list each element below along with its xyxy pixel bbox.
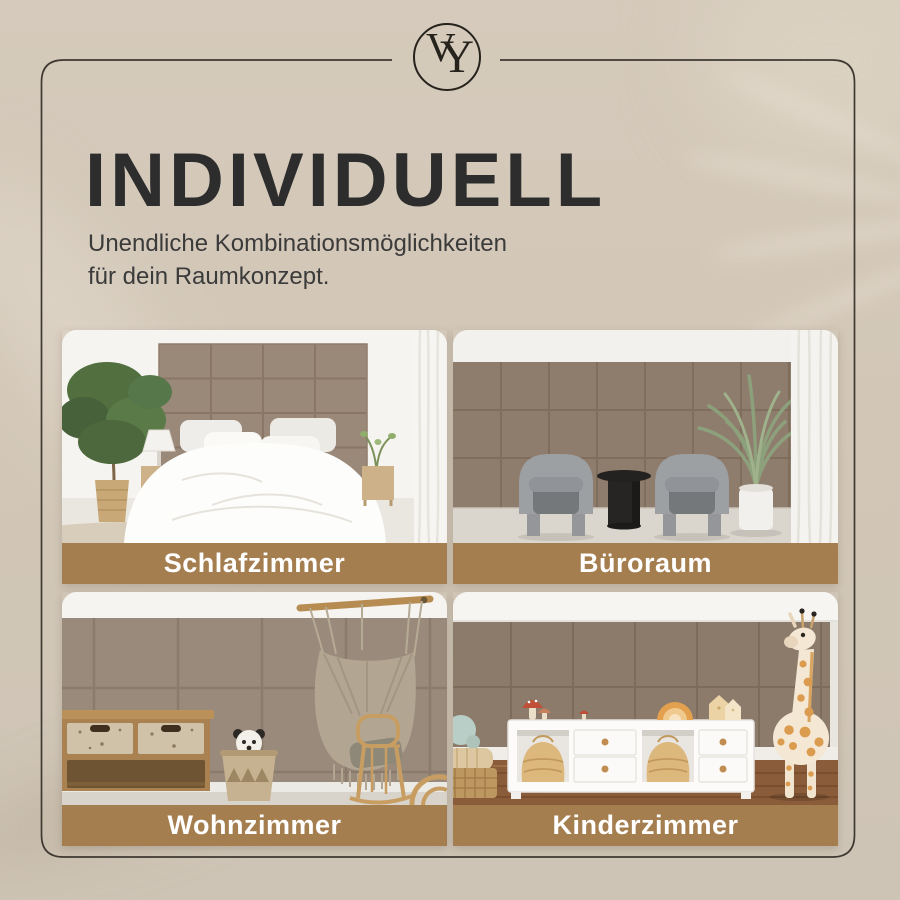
room-label-schlafzimmer: Schlafzimmer: [62, 543, 447, 584]
page-title: INDIVIDUELL: [85, 143, 606, 219]
room-tile-wohnzimmer: Wohnzimmer: [62, 592, 447, 846]
curtain: [414, 330, 447, 543]
storage-bench: [62, 710, 214, 791]
room-tile-schlafzimmer: Schlafzimmer: [62, 330, 447, 584]
sideboard: [508, 720, 754, 799]
room-label-wohnzimmer: Wohnzimmer: [62, 805, 447, 846]
subtitle-line-1: Unendliche Kombinationsmöglichkeiten: [88, 230, 507, 257]
room-label-bueroraum: Büroraum: [453, 543, 838, 584]
bedroom-photo: [62, 330, 447, 543]
room-label-kinderzimmer: Kinderzimmer: [453, 805, 838, 846]
office-photo: [453, 330, 838, 543]
room-tile-bueroraum: Büroraum: [453, 330, 838, 584]
poster-canvas: V Y INDIVIDUELL Unendliche Kombinationsm…: [0, 0, 900, 900]
curtain: [791, 330, 838, 543]
room-tile-kinderzimmer: Kinderzimmer: [453, 592, 838, 846]
wall-panels: [453, 362, 838, 508]
kids-room-photo: [453, 592, 838, 805]
page-subtitle: Unendliche Kombinationsmöglichkeiten für…: [88, 227, 507, 293]
room-grid: Schlafzimmer: [62, 330, 838, 846]
living-room-photo: [62, 592, 447, 805]
monogram-letter-y: Y: [440, 34, 474, 81]
subtitle-line-2: für dein Raumkonzept.: [88, 263, 329, 290]
brand-logo: V Y: [413, 23, 481, 91]
